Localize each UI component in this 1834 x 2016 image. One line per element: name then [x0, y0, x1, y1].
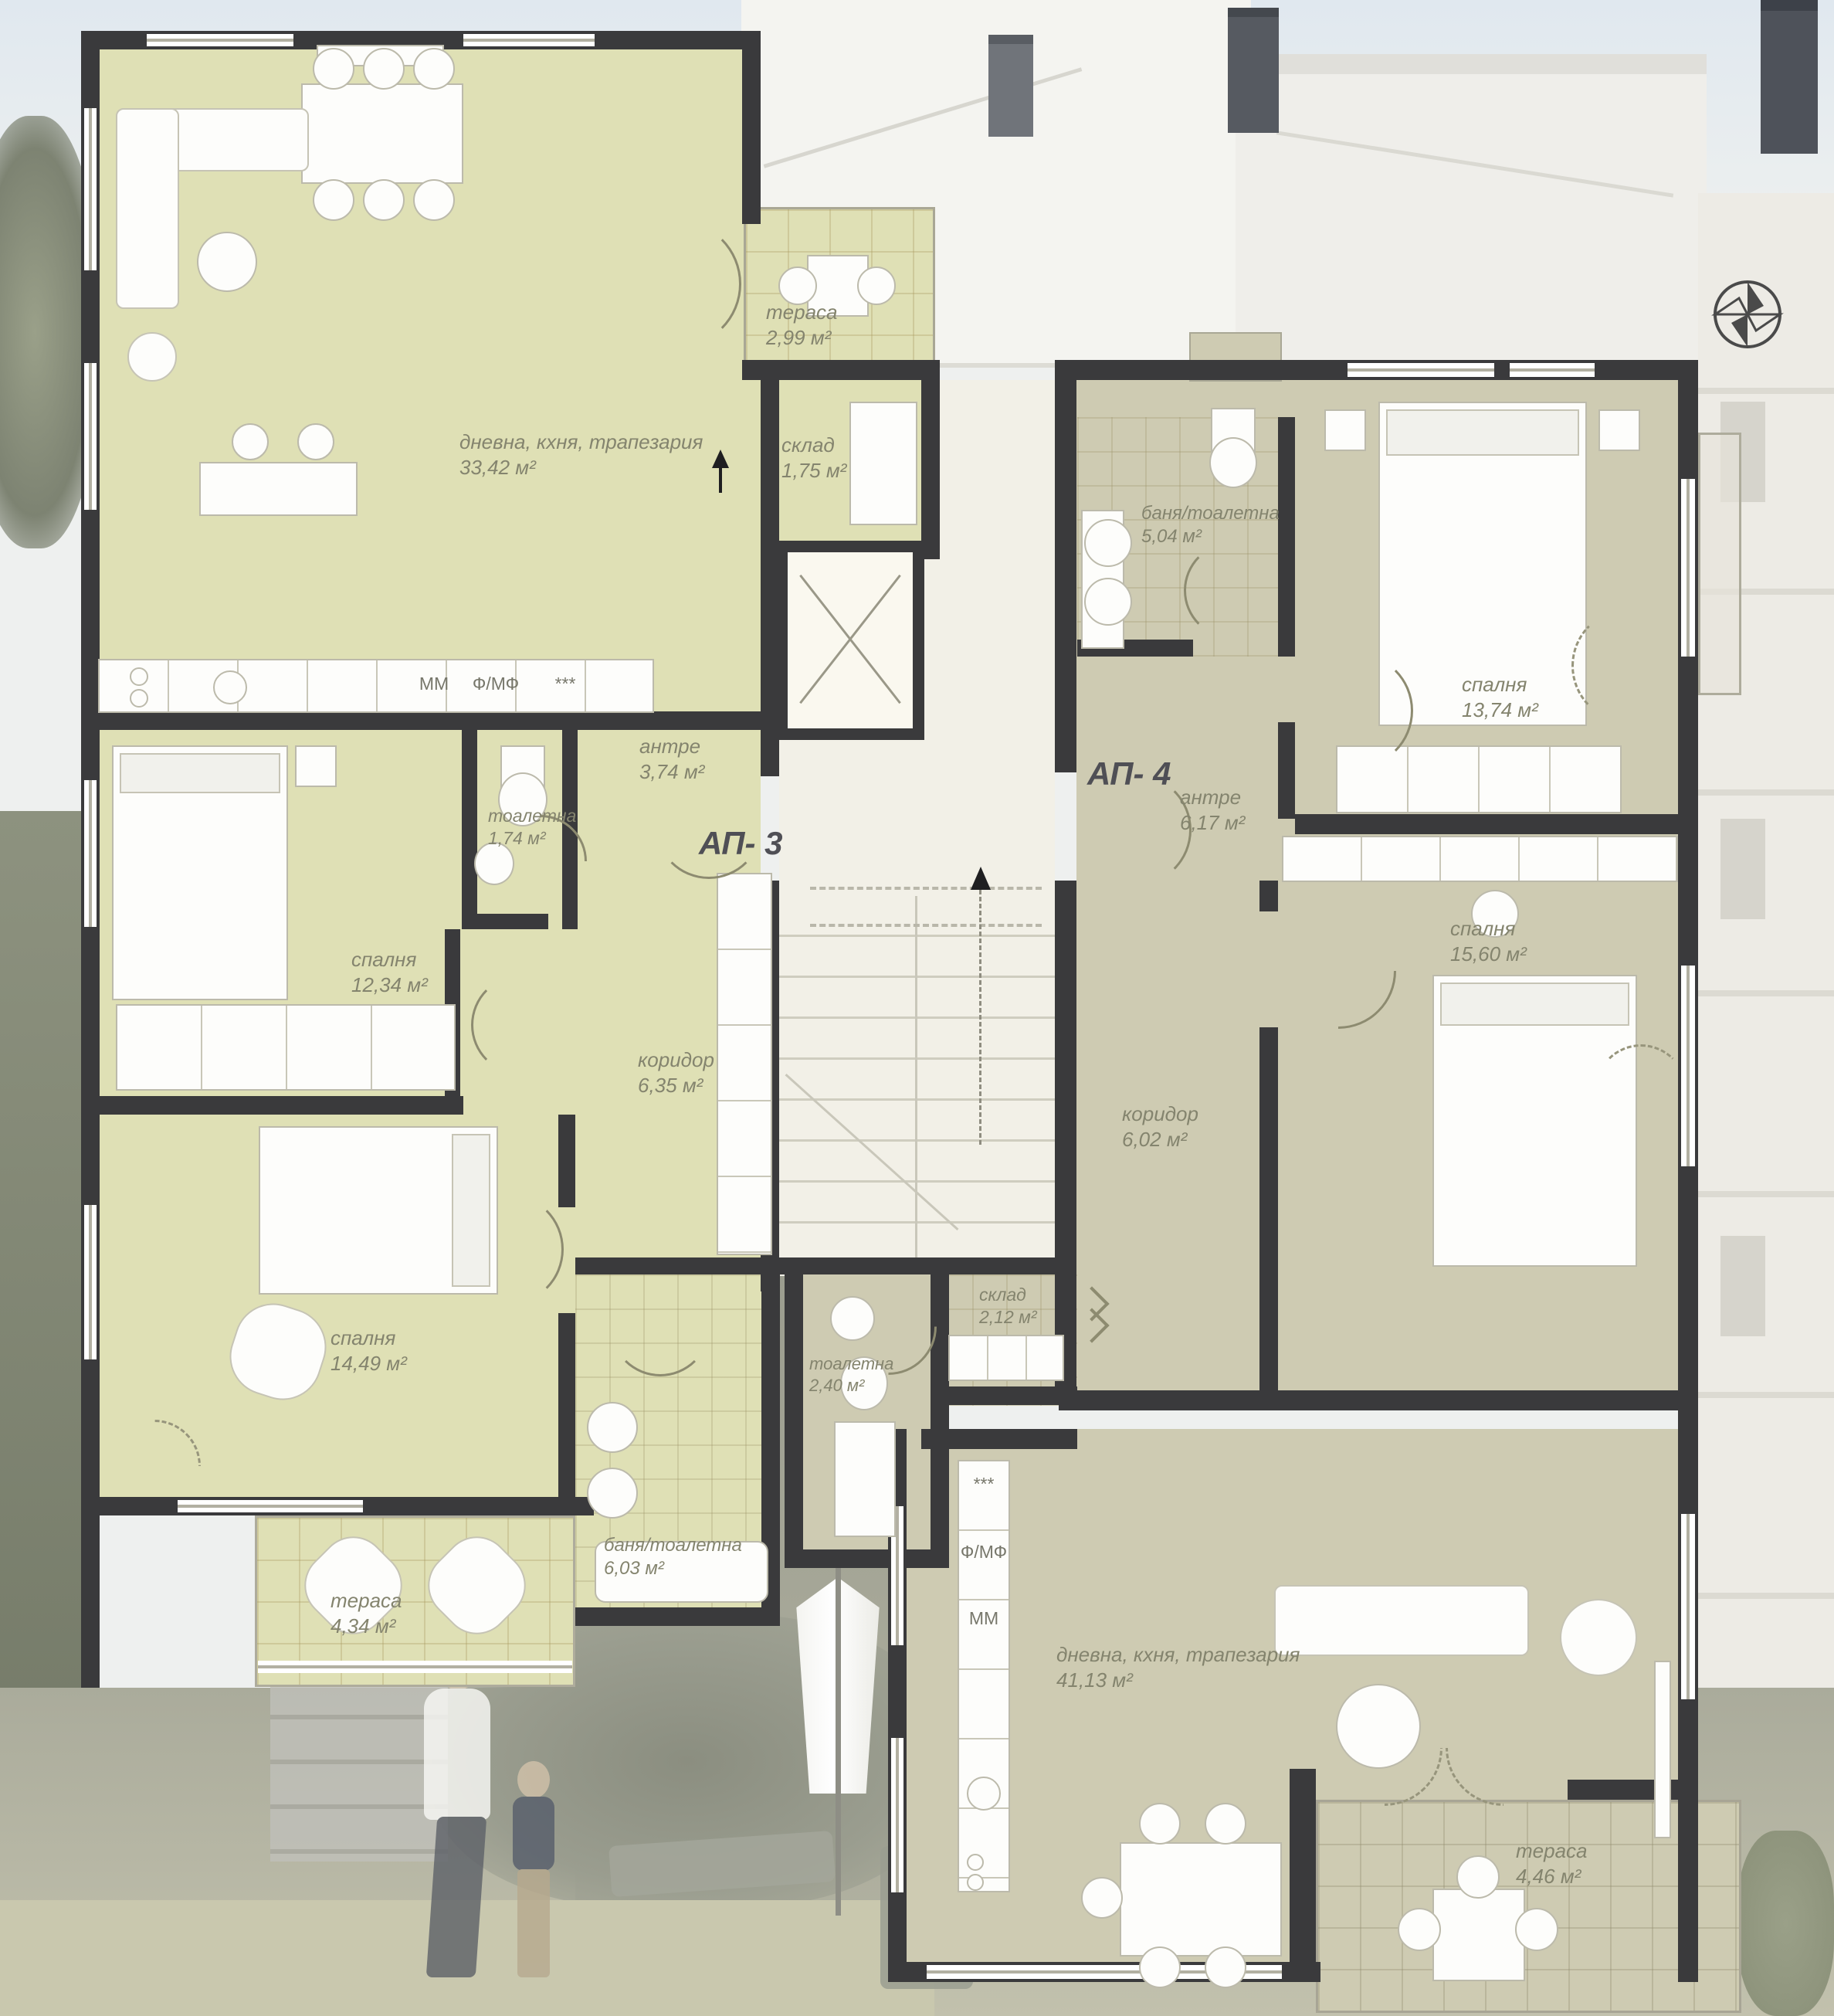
arrow-head — [712, 450, 729, 468]
terrace-table — [1432, 1889, 1525, 1981]
room-name: коридор — [638, 1048, 714, 1071]
chair — [313, 48, 354, 90]
room-label-ap3-storage: склад 1,75 м² — [781, 433, 846, 483]
pillow — [1386, 409, 1579, 456]
room-label-ap3-bedroom2: спалня 14,49 м² — [331, 1325, 407, 1376]
room-label-ap3-corridor: коридор 6,35 м² — [638, 1047, 714, 1098]
wall — [921, 380, 940, 559]
room-name: тераса — [331, 1589, 402, 1612]
room-name: баня/тоалетна — [604, 1535, 742, 1556]
stairs-arrow — [971, 867, 991, 890]
room-label-ap4-toilet: тоалетна 2,40 м² — [809, 1353, 893, 1396]
room-label-ap3-terrace-top: тераса 2,99 м² — [766, 300, 838, 350]
kitchen-code-fmf: Ф/МФ — [951, 1542, 1016, 1563]
room-label-ap3-bedroom1: спалня 12,34 м² — [351, 947, 428, 997]
kitchen-code-dots: *** — [951, 1474, 1016, 1495]
wall — [81, 711, 761, 730]
wall — [558, 1115, 575, 1207]
room-area: 12,34 м² — [351, 972, 428, 998]
bar-stool — [297, 423, 334, 460]
building-block — [1236, 54, 1707, 383]
pillow — [120, 753, 280, 793]
kitchen-code-mm: ММ — [951, 1608, 1016, 1629]
wall — [779, 1257, 1057, 1274]
wall — [742, 31, 761, 224]
wall — [931, 1386, 1077, 1405]
ap3-label: АП- 3 — [699, 825, 783, 862]
stove-burner — [967, 1874, 984, 1891]
room-label-ap3-entry: антре 3,74 м² — [639, 734, 704, 784]
door-arc-dashed — [1571, 609, 1686, 723]
room-label-ap4-bedroom1: спалня 13,74 м² — [1462, 672, 1538, 722]
room-name: антре — [1180, 786, 1241, 809]
window — [84, 108, 97, 270]
wall — [558, 1313, 575, 1502]
chimney — [988, 35, 1033, 137]
room-area: 13,74 м² — [1462, 697, 1538, 723]
room-area: 33,42 м² — [459, 455, 703, 480]
stairs-dashed-path — [810, 887, 1042, 890]
door-arc — [471, 975, 571, 1075]
room-area: 6,17 м² — [1180, 810, 1245, 836]
window — [891, 1738, 903, 1892]
chevron — [1074, 1308, 1109, 1342]
tv-unit — [1654, 1661, 1671, 1838]
room-name: дневна, кхня, трапезария — [1056, 1643, 1300, 1666]
sink — [587, 1468, 638, 1519]
wall — [1295, 814, 1678, 834]
sink — [213, 670, 247, 704]
sink — [967, 1777, 1001, 1811]
dining-table — [301, 83, 463, 184]
pillow — [1440, 983, 1629, 1026]
kitchen-counter — [958, 1460, 1010, 1892]
wall — [462, 730, 477, 929]
chair — [363, 179, 405, 221]
arrow-stem — [719, 467, 722, 493]
person-torso — [513, 1797, 554, 1871]
stove-burner — [130, 689, 148, 708]
room-name: дневна, кхня, трапезария — [459, 430, 703, 453]
room-label-ap4-entry: антре 6,17 м² — [1180, 785, 1245, 835]
room-area: 14,49 м² — [331, 1351, 407, 1376]
room-label-ap3-terrace-bottom: тераса 4,34 м² — [331, 1588, 402, 1638]
chimney — [1228, 8, 1279, 133]
room-area: 3,74 м² — [639, 759, 704, 785]
person-legs — [517, 1869, 550, 1977]
door-arc — [1184, 542, 1280, 639]
window — [1348, 363, 1494, 377]
floor-plan-page: ard R — [0, 0, 1834, 2016]
room-name: спалня — [1450, 917, 1515, 940]
chair — [1205, 1946, 1246, 1988]
room-label-ap4-living: дневна, кхня, трапезария 41,13 м² — [1056, 1642, 1300, 1692]
wall — [785, 1549, 949, 1568]
wardrobe — [717, 873, 772, 1255]
window — [84, 363, 97, 510]
room-name: спалня — [1462, 673, 1527, 696]
stove-burner — [967, 1854, 984, 1871]
chair — [1456, 1855, 1500, 1899]
wall — [1278, 722, 1295, 819]
room-area: 4,46 м² — [1516, 1864, 1588, 1889]
room-name: спалня — [351, 948, 416, 971]
sofa — [116, 108, 179, 309]
window — [1681, 966, 1695, 1166]
room-label-ap3-bath: баня/тоалетна 6,03 м² — [604, 1534, 742, 1580]
chair — [1139, 1946, 1181, 1988]
washing-machine — [1084, 519, 1132, 567]
armchair — [127, 332, 177, 382]
chair — [413, 48, 455, 90]
coffee-table — [197, 232, 257, 292]
room-name: склад — [979, 1285, 1026, 1305]
room-area: 41,13 м² — [1056, 1668, 1300, 1693]
room-name: склад — [781, 433, 835, 456]
umbrella-pole — [836, 1560, 841, 1916]
room-name: тераса — [1516, 1839, 1588, 1862]
elevator — [776, 541, 924, 740]
window — [1681, 1514, 1695, 1699]
door-arc — [1297, 653, 1413, 769]
kitchen-code-fmf: Ф/МФ — [463, 674, 528, 694]
room-name: коридор — [1122, 1102, 1198, 1125]
room-label-ap4-corridor: коридор 6,02 м² — [1122, 1101, 1198, 1152]
room-label-ap4-bedroom2: спалня 15,60 м² — [1450, 916, 1527, 966]
room-name: тоалетна — [488, 806, 576, 826]
chair — [1139, 1803, 1181, 1845]
stairs-arrow-line — [979, 890, 981, 1145]
person-legs — [426, 1817, 487, 1977]
room-name: тераса — [766, 300, 838, 324]
compass-icon — [1705, 272, 1790, 357]
chair — [413, 179, 455, 221]
nightstand — [1324, 409, 1366, 451]
door-arc — [610, 1276, 710, 1376]
room-area: 2,40 м² — [809, 1375, 893, 1397]
stairs-diagonal — [785, 1074, 959, 1230]
umbrella — [786, 1560, 894, 1923]
room-area: 6,03 м² — [604, 1557, 742, 1580]
room-area: 2,12 м² — [979, 1306, 1037, 1329]
room-area: 5,04 м² — [1141, 525, 1280, 548]
railing — [258, 1661, 572, 1673]
person-head — [517, 1761, 550, 1798]
shower — [834, 1421, 896, 1537]
window — [147, 34, 293, 46]
chair — [1205, 1803, 1246, 1845]
wall — [1290, 1769, 1316, 1977]
chair — [857, 266, 896, 305]
room-area: 4,34 м² — [331, 1614, 402, 1639]
room-area: 6,35 м² — [638, 1073, 714, 1098]
wardrobe — [1282, 836, 1678, 882]
room-area: 1,75 м² — [781, 458, 846, 484]
room-name: спалня — [331, 1326, 395, 1349]
stairs-dashed-path — [810, 924, 1042, 927]
bar-stool — [232, 423, 269, 460]
window — [178, 1500, 363, 1512]
stairs — [779, 896, 1055, 1274]
building-window — [1720, 819, 1765, 919]
kitchen-island — [199, 462, 358, 516]
person-child — [494, 1761, 579, 1977]
nightstand — [295, 745, 337, 787]
chair — [363, 48, 405, 90]
chair — [1081, 1877, 1123, 1919]
balcony — [1698, 433, 1741, 695]
shelf — [849, 402, 917, 525]
room-label-ap3-living: дневна, кхня, трапезария 33,42 м² — [459, 429, 703, 480]
wall — [785, 1274, 803, 1568]
room-area: 15,60 м² — [1450, 942, 1527, 967]
chair — [313, 179, 354, 221]
kitchen-code-mm: ММ — [402, 674, 466, 694]
wall — [761, 380, 779, 776]
chair — [1398, 1908, 1441, 1951]
room-label-ap4-storage: склад 2,12 м² — [979, 1284, 1037, 1329]
room-name: баня/тоалетна — [1141, 503, 1280, 524]
chimney — [1761, 0, 1818, 154]
door-arc — [452, 1193, 564, 1305]
wardrobe — [116, 1004, 456, 1091]
room-name: тоалетна — [809, 1354, 893, 1373]
room-name: антре — [639, 735, 700, 758]
wall — [1055, 360, 1076, 772]
room-label-ap4-bath: баня/тоалетна 5,04 м² — [1141, 502, 1280, 548]
armchair — [1560, 1599, 1637, 1676]
toilet — [1209, 437, 1257, 488]
room-label-ap4-terrace: тераса 4,46 м² — [1516, 1838, 1588, 1889]
wall — [1278, 417, 1295, 657]
room-label-ap3-toilet: тоалетна 1,74 м² — [488, 805, 576, 850]
wall — [1259, 1027, 1278, 1390]
door-arc-dashed — [1595, 1044, 1687, 1137]
ap4-label: АП- 4 — [1087, 755, 1171, 792]
room-area: 1,74 м² — [488, 827, 576, 850]
wall — [575, 1257, 780, 1274]
building-window — [1720, 1236, 1765, 1336]
sofa — [1274, 1585, 1529, 1656]
window — [1681, 479, 1695, 657]
wall — [1059, 1390, 1678, 1410]
wall — [1259, 881, 1278, 911]
window — [463, 34, 595, 46]
person-torso — [424, 1688, 490, 1820]
stairs-divider — [915, 896, 917, 1274]
stove-burner — [130, 667, 148, 686]
window — [1510, 363, 1595, 377]
dining-table — [1120, 1842, 1282, 1957]
wall — [462, 914, 548, 929]
entrance-arrow-icon — [710, 450, 731, 496]
wall — [575, 1607, 780, 1626]
shelf — [948, 1335, 1064, 1381]
door-arc — [614, 220, 741, 348]
kitchen-code-dots: *** — [533, 674, 598, 694]
wall — [742, 360, 940, 380]
room-area: 2,99 м² — [766, 325, 838, 351]
wall — [81, 1096, 463, 1115]
sink — [587, 1402, 638, 1453]
nightstand — [1598, 409, 1640, 451]
window — [84, 780, 97, 927]
chevron-icon — [1080, 1291, 1126, 1338]
room-area: 6,02 м² — [1122, 1127, 1198, 1152]
washing-machine — [1084, 578, 1132, 626]
chair — [1515, 1908, 1558, 1951]
bush — [1737, 1831, 1834, 2016]
window — [84, 1205, 97, 1359]
